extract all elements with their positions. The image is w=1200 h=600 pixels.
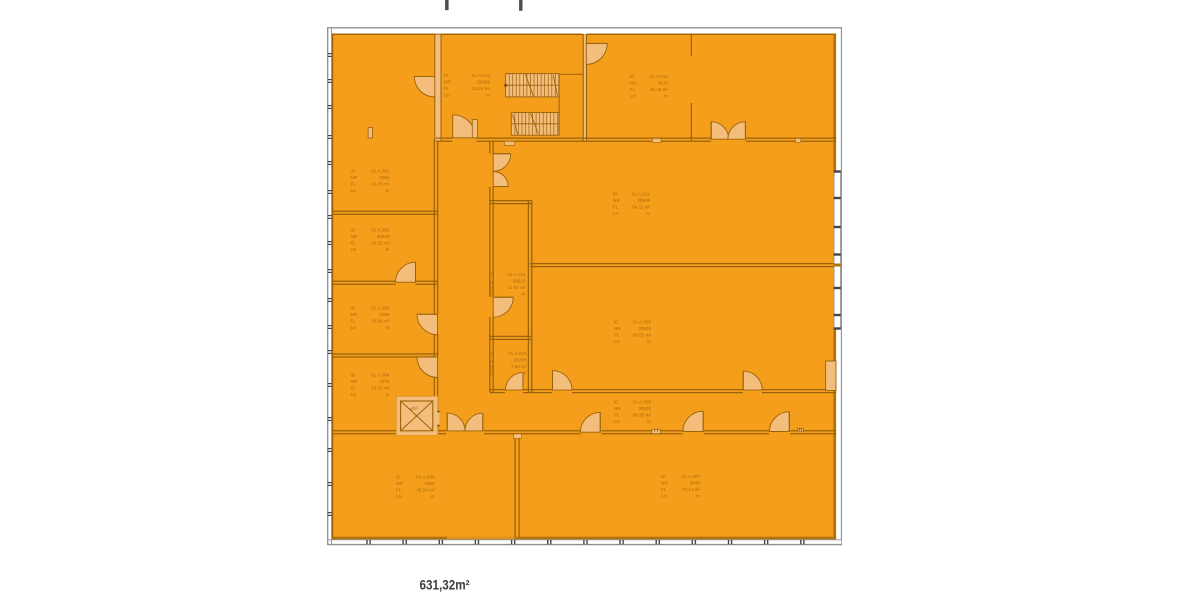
svg-text:ID: ID bbox=[444, 73, 449, 78]
svg-text:30708: 30708 bbox=[514, 358, 527, 363]
svg-text:LH: LH bbox=[351, 188, 357, 193]
svg-text:NR: NR bbox=[351, 312, 358, 317]
svg-text:66.95 m²: 66.95 m² bbox=[633, 413, 652, 418]
svg-text:FL: FL bbox=[396, 488, 402, 493]
svg-text:7.53 m²: 7.53 m² bbox=[511, 364, 527, 369]
svg-text:82.18 m²: 82.18 m² bbox=[650, 87, 669, 92]
svg-text:11.67 m²: 11.67 m² bbox=[508, 285, 526, 290]
svg-text:34.26 m²: 34.26 m² bbox=[472, 86, 491, 91]
svg-text:FL: FL bbox=[661, 487, 667, 492]
svg-text:LH: LH bbox=[613, 211, 619, 216]
svg-text:NR: NR bbox=[614, 326, 621, 331]
svg-text:NR: NR bbox=[351, 234, 358, 239]
svg-text:LH: LH bbox=[351, 247, 357, 252]
svg-text:FL: FL bbox=[351, 386, 357, 391]
svg-text:3086: 3086 bbox=[424, 481, 435, 486]
svg-text:m: m bbox=[696, 494, 700, 499]
svg-text:ID: ID bbox=[630, 74, 635, 79]
svg-text:45.54 m²: 45.54 m² bbox=[416, 488, 435, 493]
svg-text:01.A.007: 01.A.007 bbox=[682, 474, 701, 479]
svg-text:ID: ID bbox=[614, 320, 619, 325]
svg-text:ID: ID bbox=[614, 400, 619, 405]
svg-text:30909: 30909 bbox=[637, 198, 650, 203]
svg-text:01.A.011: 01.A.011 bbox=[507, 272, 525, 277]
svg-text:m: m bbox=[386, 392, 390, 397]
svg-text:FL: FL bbox=[351, 241, 357, 246]
svg-text:01.A.005: 01.A.005 bbox=[416, 475, 435, 480]
svg-text:m: m bbox=[386, 247, 390, 252]
svg-text:30929: 30929 bbox=[638, 326, 651, 331]
svg-text:FL: FL bbox=[614, 333, 620, 338]
svg-text:FL: FL bbox=[614, 413, 620, 418]
svg-text:m: m bbox=[664, 94, 668, 99]
svg-text:3080: 3080 bbox=[379, 312, 390, 317]
svg-text:m: m bbox=[647, 419, 651, 424]
svg-text:ID: ID bbox=[351, 306, 356, 311]
svg-text:ID: ID bbox=[351, 373, 356, 378]
svg-text:FL: FL bbox=[351, 319, 357, 324]
svg-text:3094: 3094 bbox=[379, 175, 390, 180]
svg-text:NR: NR bbox=[661, 481, 668, 486]
svg-text:01.A.013: 01.A.013 bbox=[650, 74, 669, 79]
svg-text:NR: NR bbox=[351, 379, 358, 384]
svg-text:631,32m²: 631,32m² bbox=[420, 577, 470, 592]
svg-text:LH: LH bbox=[614, 339, 620, 344]
svg-text:LH: LH bbox=[396, 494, 402, 499]
svg-text:NR: NR bbox=[351, 175, 358, 180]
svg-text:LH: LH bbox=[661, 494, 667, 499]
svg-text:m: m bbox=[646, 211, 650, 216]
svg-text:3013: 3013 bbox=[658, 81, 669, 86]
svg-text:01.A.003: 01.A.003 bbox=[371, 306, 390, 311]
svg-text:ID: ID bbox=[351, 228, 356, 233]
svg-text:ID: ID bbox=[351, 169, 356, 174]
svg-text:01.A.014: 01.A.014 bbox=[472, 73, 491, 78]
svg-text:NR: NR bbox=[613, 198, 620, 203]
svg-text:01.A.012: 01.A.012 bbox=[632, 192, 651, 197]
svg-text:42.76 m²: 42.76 m² bbox=[371, 182, 390, 187]
svg-text:LH: LH bbox=[351, 392, 357, 397]
svg-text:89.51 m²: 89.51 m² bbox=[633, 333, 652, 338]
svg-text:94.11 m²: 94.11 m² bbox=[632, 205, 650, 210]
svg-text:01.A.001: 01.A.001 bbox=[371, 169, 390, 174]
svg-text:01.A.004: 01.A.004 bbox=[371, 373, 390, 378]
svg-text:m: m bbox=[647, 339, 651, 344]
svg-text:01.A.009: 01.A.009 bbox=[633, 320, 652, 325]
svg-text:01.A.008: 01.A.008 bbox=[633, 400, 652, 405]
svg-text:FL: FL bbox=[351, 182, 357, 187]
svg-text:30546: 30546 bbox=[377, 234, 390, 239]
svg-text:ID: ID bbox=[613, 192, 618, 197]
svg-text:LH: LH bbox=[444, 93, 450, 98]
svg-text:LH: LH bbox=[614, 419, 620, 424]
svg-text:NR: NR bbox=[630, 81, 637, 86]
svg-text:m: m bbox=[522, 292, 526, 297]
svg-text:3048: 3048 bbox=[690, 481, 701, 486]
svg-text:m: m bbox=[386, 325, 390, 330]
svg-text:m: m bbox=[486, 93, 490, 98]
svg-text:01.A.002: 01.A.002 bbox=[371, 228, 390, 233]
svg-text:3075: 3075 bbox=[379, 379, 390, 384]
svg-text:LH: LH bbox=[630, 94, 636, 99]
svg-text:NR: NR bbox=[444, 80, 451, 85]
svg-text:16.91 m²: 16.91 m² bbox=[371, 319, 390, 324]
svg-text:FL: FL bbox=[444, 86, 450, 91]
svg-text:m: m bbox=[431, 494, 435, 499]
svg-text:NR: NR bbox=[396, 481, 403, 486]
svg-text:LH: LH bbox=[351, 325, 357, 330]
svg-text:ID: ID bbox=[661, 474, 666, 479]
svg-text:01.A.010: 01.A.010 bbox=[508, 351, 527, 356]
svg-text:ID: ID bbox=[396, 475, 401, 480]
svg-text:73.14 m²: 73.14 m² bbox=[682, 487, 701, 492]
svg-text:FL: FL bbox=[630, 87, 636, 92]
svg-text:m: m bbox=[523, 371, 527, 376]
svg-text:30626: 30626 bbox=[513, 279, 526, 284]
svg-text:14.61 m²: 14.61 m² bbox=[371, 386, 390, 391]
svg-text:FL: FL bbox=[613, 205, 619, 210]
svg-text:30565: 30565 bbox=[477, 80, 490, 85]
svg-text:30628: 30628 bbox=[638, 406, 651, 411]
svg-text:16.21 m²: 16.21 m² bbox=[371, 241, 390, 246]
svg-text:ID NR FL LH: ID NR FL LH bbox=[490, 352, 495, 377]
svg-text:m: m bbox=[386, 188, 390, 193]
svg-text:NR: NR bbox=[614, 406, 621, 411]
svg-text:ID NR FL LH: ID NR FL LH bbox=[490, 273, 495, 298]
